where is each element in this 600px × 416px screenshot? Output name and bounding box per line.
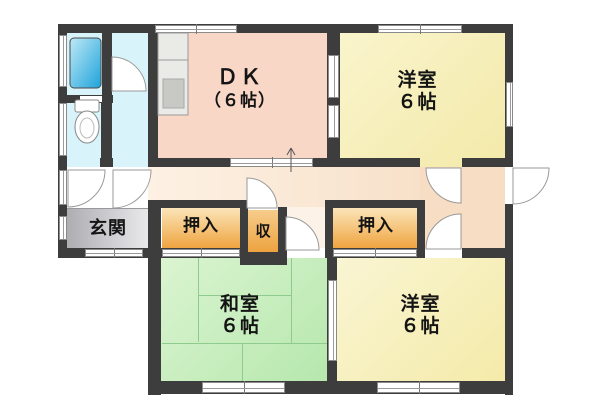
hallway-left bbox=[67, 167, 148, 208]
wall-western-top-bottom-b bbox=[462, 158, 513, 167]
wall-toilet-right bbox=[101, 95, 112, 167]
sliding-door-symbol bbox=[162, 249, 240, 257]
window-symbol bbox=[328, 105, 339, 138]
window-symbol bbox=[377, 382, 460, 393]
label-japanese-line2: ６帖 bbox=[185, 316, 295, 338]
label-japanese-line1: 和室 bbox=[185, 294, 295, 316]
window-symbol bbox=[328, 280, 337, 361]
wall-dk-bottom-a bbox=[148, 158, 230, 167]
tatami-line bbox=[242, 343, 243, 381]
window-symbol bbox=[202, 382, 285, 393]
label-japanese-room: 和室 ６帖 bbox=[185, 294, 295, 339]
doorway-opening bbox=[80, 96, 102, 102]
label-closet-right: 押入 bbox=[340, 216, 412, 236]
tatami-line bbox=[162, 343, 327, 344]
window-symbol bbox=[328, 55, 339, 98]
label-western-top-line1: 洋室 bbox=[360, 70, 475, 92]
window-symbol bbox=[59, 103, 67, 156]
entrance-door-symbol bbox=[85, 249, 143, 257]
label-closet-right-text: 押入 bbox=[340, 216, 412, 236]
wall-right bbox=[505, 24, 513, 395]
window-symbol bbox=[378, 25, 462, 33]
sliding-door-symbol bbox=[230, 158, 313, 167]
wall-washroom-hall-stub bbox=[100, 158, 113, 167]
label-closet-left-text: 押入 bbox=[165, 216, 237, 236]
label-western-bottom: 洋室 ６帖 bbox=[363, 294, 478, 339]
window-symbol bbox=[59, 35, 67, 87]
wall-closet-right-top bbox=[325, 200, 425, 208]
window-symbol bbox=[506, 82, 513, 127]
label-western-bottom-line1: 洋室 bbox=[363, 294, 478, 316]
doorway-opening bbox=[505, 167, 513, 204]
label-dk-line2: （６帖） bbox=[175, 91, 305, 111]
label-storage-text: 収 bbox=[248, 223, 278, 241]
doorway-opening bbox=[287, 248, 325, 258]
wall-closet-left-top bbox=[148, 200, 248, 208]
wall-western-top-bottom-a bbox=[340, 158, 420, 167]
wall-bath-washroom bbox=[102, 24, 112, 103]
label-entrance-text: 玄関 bbox=[72, 218, 144, 239]
label-closet-left: 押入 bbox=[165, 216, 237, 236]
label-western-top: 洋室 ６帖 bbox=[360, 70, 475, 115]
window-symbol bbox=[155, 25, 237, 33]
window-symbol bbox=[59, 170, 67, 205]
wall-dk-left bbox=[148, 24, 158, 167]
sliding-door-symbol bbox=[333, 249, 417, 257]
wall-western-bottom-top bbox=[462, 248, 513, 258]
label-dk-line1: ＤＫ bbox=[175, 66, 305, 91]
hallway-right bbox=[420, 167, 505, 248]
wall-storage-bottom bbox=[240, 252, 287, 265]
wall-japanese-left bbox=[148, 200, 161, 395]
label-western-top-line2: ６帖 bbox=[360, 92, 475, 114]
door-swing-icon bbox=[513, 168, 549, 204]
doorway-opening bbox=[425, 248, 462, 258]
floor-plan: ＤＫ （６帖） 洋室 ６帖 和室 ６帖 洋室 ６帖 玄関 押入 押入 収 bbox=[0, 0, 600, 416]
window-symbol bbox=[59, 216, 67, 240]
label-dk: ＤＫ （６帖） bbox=[175, 66, 305, 111]
label-entrance: 玄関 bbox=[72, 218, 144, 239]
label-western-bottom-line2: ６帖 bbox=[363, 316, 478, 338]
label-storage: 収 bbox=[248, 223, 278, 241]
